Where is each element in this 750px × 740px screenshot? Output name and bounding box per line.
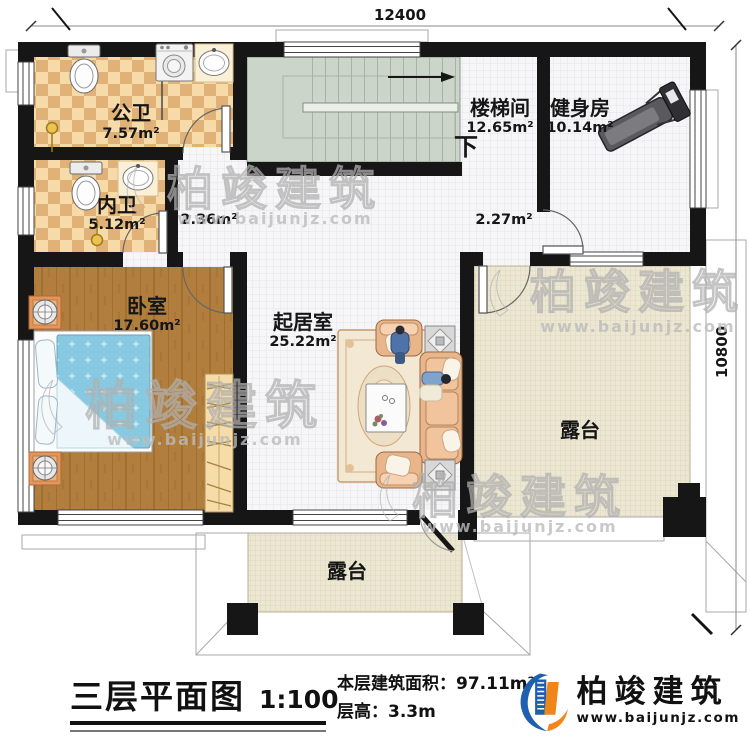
wall-bedroom-top [167, 252, 183, 267]
wall-gym-bottom [643, 252, 706, 266]
sink-icon [118, 161, 158, 196]
bedroom-window-sill [22, 535, 205, 549]
room-label-terrace-right: 露台 [560, 418, 600, 442]
window-left-bedroom [18, 340, 34, 512]
window-left-publicbath [18, 62, 34, 105]
coffee-table [366, 384, 406, 432]
watermark-text: 柏竣建筑 [412, 470, 628, 524]
stair-handrail [303, 103, 458, 112]
room-label-stairwell: 楼梯间 [470, 96, 530, 120]
pillar-terrace-right [663, 497, 706, 537]
watermark-url: www.baijunjz.com [540, 317, 735, 336]
room-label-bedroom: 卧室 [127, 294, 167, 318]
stairs [247, 57, 460, 162]
watermark-text: 柏竣建筑 [530, 265, 746, 319]
pillar-terrace-bottom-right [453, 603, 484, 635]
company-logo-icon [516, 670, 568, 732]
plan-title: 三层平面图 [70, 670, 245, 718]
logo-name: 柏竣建筑 [577, 676, 729, 709]
watermark-url: www.baijunjz.com [177, 209, 372, 228]
area-label-hall-mid: 2.27m² [475, 212, 532, 228]
floorplan-page: 12400 10800 公卫 7.57m² 内卫 5.12m² 2.36m² 楼… [0, 0, 750, 740]
apron-line [462, 533, 484, 612]
room-label-gym: 健身房 [550, 96, 610, 120]
sofa [420, 352, 462, 464]
watermark-url: www.baijunjz.com [422, 517, 617, 536]
floor-height-text: 层高：3.3m [337, 698, 535, 726]
wall-bath-divider [18, 147, 183, 160]
window-right-gym [690, 90, 706, 208]
plan-scale: 1:100 [259, 685, 339, 714]
room-label-terrace-bottom: 露台 [327, 559, 367, 583]
pillar-terrace-bottom-left [227, 603, 258, 635]
room-area-living: 25.22m² [269, 334, 336, 350]
right-window-sill [706, 90, 718, 208]
room-area-gym: 10.14m² [546, 120, 613, 136]
stair-down-label: 下 [454, 133, 478, 161]
plan-stats: 本层建筑面积：97.11m² 层高：3.3m [337, 670, 535, 726]
sink-icon [195, 44, 233, 82]
window-bedroom-bottom [58, 510, 203, 525]
room-label-public-bath: 公卫 [111, 101, 151, 125]
wall-gym-bottom [460, 252, 483, 266]
pillar-terrace-right [678, 483, 700, 499]
wall-bedroom-top [18, 252, 123, 267]
logo-url: www.baijunjz.com [577, 710, 741, 726]
watermark: 柏竣建筑 www.baijunjz.com [380, 470, 628, 536]
room-area-private-bath: 5.12m² [88, 217, 145, 233]
floorplan-drawing: 12400 10800 公卫 7.57m² 内卫 5.12m² 2.36m² 楼… [0, 0, 750, 660]
room-area-public-bath: 7.57m² [102, 126, 159, 142]
window-left-privatebath [18, 187, 34, 235]
window-living-bottom [293, 510, 407, 525]
top-window-sill [276, 30, 428, 42]
watermark-text: 柏竣建筑 [85, 377, 325, 437]
room-area-bedroom: 17.60m² [113, 318, 180, 334]
nightstand [29, 452, 61, 485]
title-underline-thin [70, 730, 326, 732]
watermark-url: www.baijunjz.com [107, 430, 302, 449]
washing-machine-icon [156, 44, 193, 81]
apron-corner-diagonal [484, 612, 530, 655]
title-underline [70, 721, 326, 725]
watermark-text: 柏竣建筑 [167, 162, 383, 216]
dimension-top: 12400 [374, 6, 426, 24]
toilet-icon [68, 45, 100, 93]
wall-bath-right [233, 42, 247, 160]
living-furniture [338, 320, 462, 490]
nightstand [29, 296, 61, 329]
title-block: 三层平面图 1:100 本层建筑面积：97.11m² 层高：3.3m 柏竣建筑 … [0, 660, 750, 740]
floor-area-text: 本层建筑面积：97.11m² [337, 670, 535, 698]
window-top [284, 42, 420, 57]
room-label-living: 起居室 [272, 310, 333, 334]
wall-living-bottom [233, 510, 293, 525]
company-logo: 柏竣建筑 www.baijunjz.com [516, 670, 741, 732]
plan-title-block: 三层平面图 1:100 [70, 670, 330, 732]
